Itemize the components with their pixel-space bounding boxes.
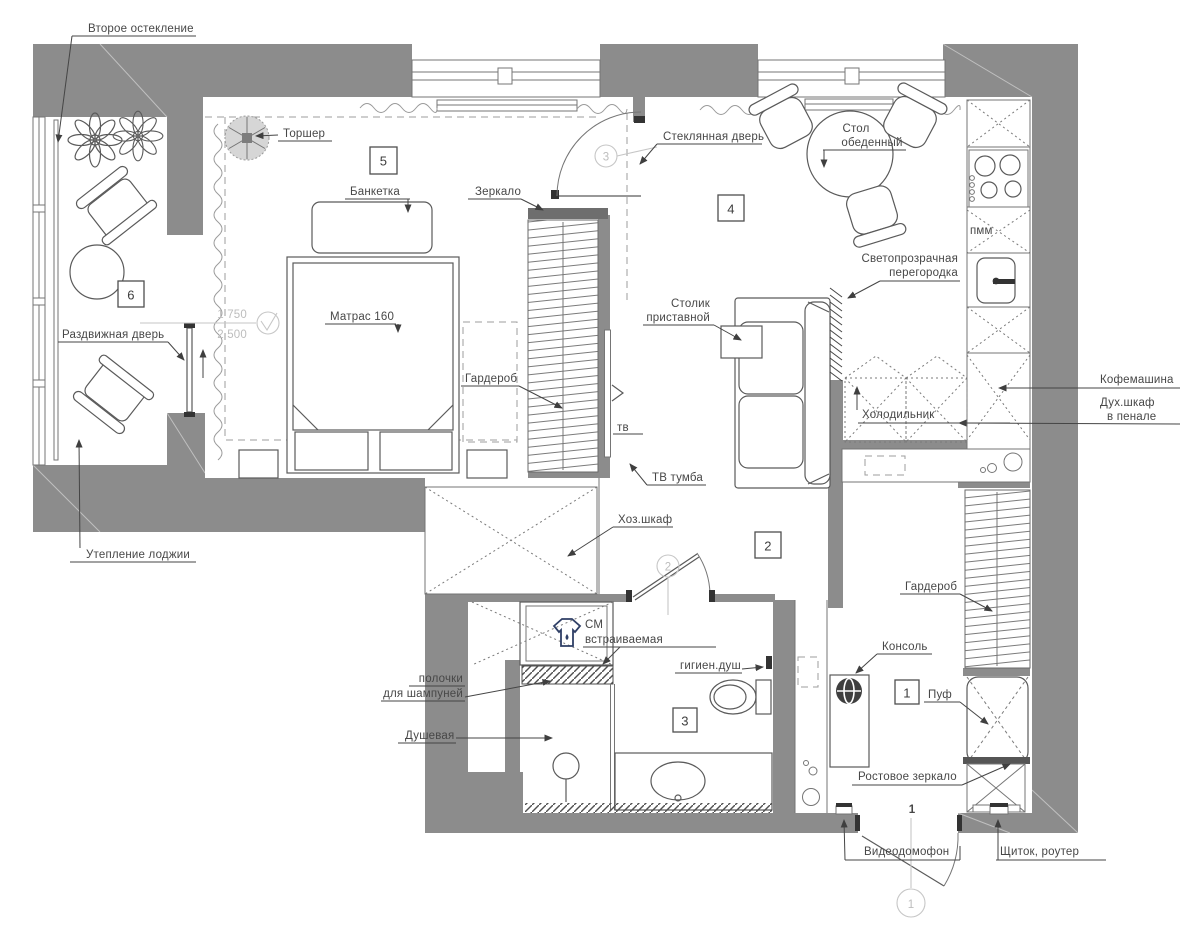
svg-text:гигиен.душ: гигиен.душ bbox=[680, 660, 741, 672]
svg-text:Гардероб: Гардероб bbox=[905, 581, 957, 593]
svg-text:полочки: полочки bbox=[419, 673, 463, 685]
label-tv-stand: ТВ тумба bbox=[630, 464, 706, 485]
svg-text:Дух.шкаф: Дух.шкаф bbox=[1100, 397, 1155, 409]
nightstand bbox=[467, 450, 507, 478]
room-3-number: 3 bbox=[681, 714, 688, 729]
door-marker-2: 2 bbox=[665, 562, 672, 574]
console-table bbox=[830, 675, 869, 767]
label-video-intercom: Видеодомофон bbox=[844, 820, 960, 860]
svg-text:Банкетка: Банкетка bbox=[350, 186, 400, 198]
hob bbox=[969, 150, 1028, 207]
svg-text:в пенале: в пенале bbox=[1107, 411, 1156, 423]
second-glazing-line bbox=[54, 120, 58, 460]
svg-text:встраиваемая: встраиваемая bbox=[585, 634, 663, 646]
kitchen-sink bbox=[977, 258, 1015, 303]
room-1-number: 1 bbox=[903, 686, 910, 701]
pouf bbox=[967, 677, 1028, 763]
room-5-number: 5 bbox=[380, 154, 387, 169]
svg-text:Холодильник: Холодильник bbox=[862, 409, 935, 421]
kitchen-base-counter bbox=[842, 449, 1030, 482]
svg-text:Стеклянная дверь: Стеклянная дверь bbox=[663, 131, 764, 143]
hall bbox=[425, 478, 715, 602]
level-upper: 1 750 bbox=[217, 309, 247, 321]
electrical-panel-device bbox=[990, 803, 1008, 814]
svg-text:для шампуней: для шампуней bbox=[383, 688, 463, 700]
svg-text:Пуф: Пуф bbox=[928, 689, 952, 701]
svg-text:Консоль: Консоль bbox=[882, 641, 928, 653]
svg-text:Торшер: Торшер bbox=[283, 128, 325, 140]
svg-text:ТВ тумба: ТВ тумба bbox=[652, 472, 703, 484]
shower-area bbox=[553, 684, 615, 810]
door-marker-3: 3 bbox=[603, 152, 610, 164]
globe-icon bbox=[836, 678, 862, 704]
tv: тв bbox=[605, 330, 644, 457]
side-table bbox=[721, 326, 762, 358]
floor-plan: 1 750 2 500 тв bbox=[0, 0, 1200, 926]
nightstand bbox=[239, 450, 278, 478]
plant-icon bbox=[68, 113, 122, 167]
round-table bbox=[70, 245, 124, 299]
svg-text:Кофемашина: Кофемашина bbox=[1100, 374, 1174, 386]
armchair bbox=[70, 354, 155, 437]
bath-edge-hatch bbox=[525, 803, 772, 813]
svg-text:Душевая: Душевая bbox=[405, 730, 454, 742]
room-6-number: 6 bbox=[127, 288, 134, 303]
tv-label: тв bbox=[617, 422, 629, 434]
armchair bbox=[73, 163, 158, 246]
svg-text:Столик: Столик bbox=[671, 298, 711, 310]
mirror-strip bbox=[528, 208, 608, 219]
svg-text:Второе остекление: Второе остекление bbox=[88, 23, 194, 35]
tech-column bbox=[795, 600, 827, 813]
door-marker-1: 1 bbox=[908, 899, 915, 911]
glass-partition bbox=[830, 288, 842, 381]
bath-door bbox=[626, 553, 715, 602]
fridge bbox=[845, 356, 967, 442]
toilet bbox=[710, 680, 771, 714]
svg-text:Раздвижная дверь: Раздвижная дверь bbox=[62, 329, 164, 341]
room-2-number: 2 bbox=[764, 539, 771, 554]
window-loggia bbox=[33, 117, 45, 465]
svg-text:Гардероб: Гардероб bbox=[465, 373, 517, 385]
svg-text:Зеркало: Зеркало bbox=[475, 186, 521, 198]
bed bbox=[287, 257, 459, 473]
dishwasher-label: пмм bbox=[970, 225, 993, 237]
label-shower: Душевая bbox=[398, 730, 552, 743]
svg-text:Утепление лоджии: Утепление лоджии bbox=[86, 549, 190, 561]
shampoo-shelves bbox=[522, 666, 613, 684]
sliding-door bbox=[184, 323, 203, 417]
svg-text:Стол: Стол bbox=[842, 123, 869, 135]
bedroom-door bbox=[551, 112, 645, 199]
svg-text:СМ: СМ bbox=[585, 619, 603, 631]
label-hygienic-shower: гигиен.душ bbox=[675, 660, 763, 673]
radiator-bedroom bbox=[437, 100, 577, 111]
label-glass-door: Стеклянная дверь bbox=[640, 131, 764, 164]
bedroom-wardrobe: тв bbox=[528, 208, 643, 472]
svg-text:обеденный: обеденный bbox=[841, 137, 902, 149]
label-sliding-door: Раздвижная дверь bbox=[58, 329, 184, 360]
plant-icon bbox=[113, 111, 163, 161]
utility-cabinet bbox=[425, 487, 597, 594]
svg-text:Ростовое зеркало: Ростовое зеркало bbox=[858, 771, 957, 783]
floor-lamp-icon bbox=[225, 116, 269, 160]
svg-text:Светопрозрачная: Светопрозрачная bbox=[862, 253, 959, 265]
svg-text:Хоз.шкаф: Хоз.шкаф bbox=[618, 514, 672, 526]
label-mirror: Зеркало bbox=[468, 186, 543, 210]
label-console: Консоль bbox=[856, 641, 932, 673]
svg-text:Щиток, роутер: Щиток, роутер bbox=[1000, 846, 1079, 858]
svg-text:Матрас 160: Матрас 160 bbox=[330, 311, 394, 323]
radiator-living bbox=[805, 99, 893, 110]
banquette bbox=[312, 202, 432, 253]
room-4-number: 4 bbox=[727, 202, 734, 217]
floor-plan-canvas: 1 750 2 500 тв bbox=[0, 0, 1200, 926]
bathtub bbox=[615, 753, 772, 810]
entry-big-number: 1 bbox=[909, 804, 916, 816]
entry-wardrobe bbox=[965, 490, 1030, 668]
level-lower: 2 500 bbox=[217, 329, 247, 341]
svg-text:приставной: приставной bbox=[646, 312, 710, 324]
svg-text:Видеодомофон: Видеодомофон bbox=[864, 846, 949, 858]
svg-text:перегородка: перегородка bbox=[889, 267, 958, 279]
video-intercom-device bbox=[836, 803, 852, 814]
hygienic-shower-fixture bbox=[766, 656, 772, 669]
window-bedroom bbox=[412, 60, 600, 97]
label-partition: Светопрозрачная перегородка bbox=[848, 253, 960, 298]
